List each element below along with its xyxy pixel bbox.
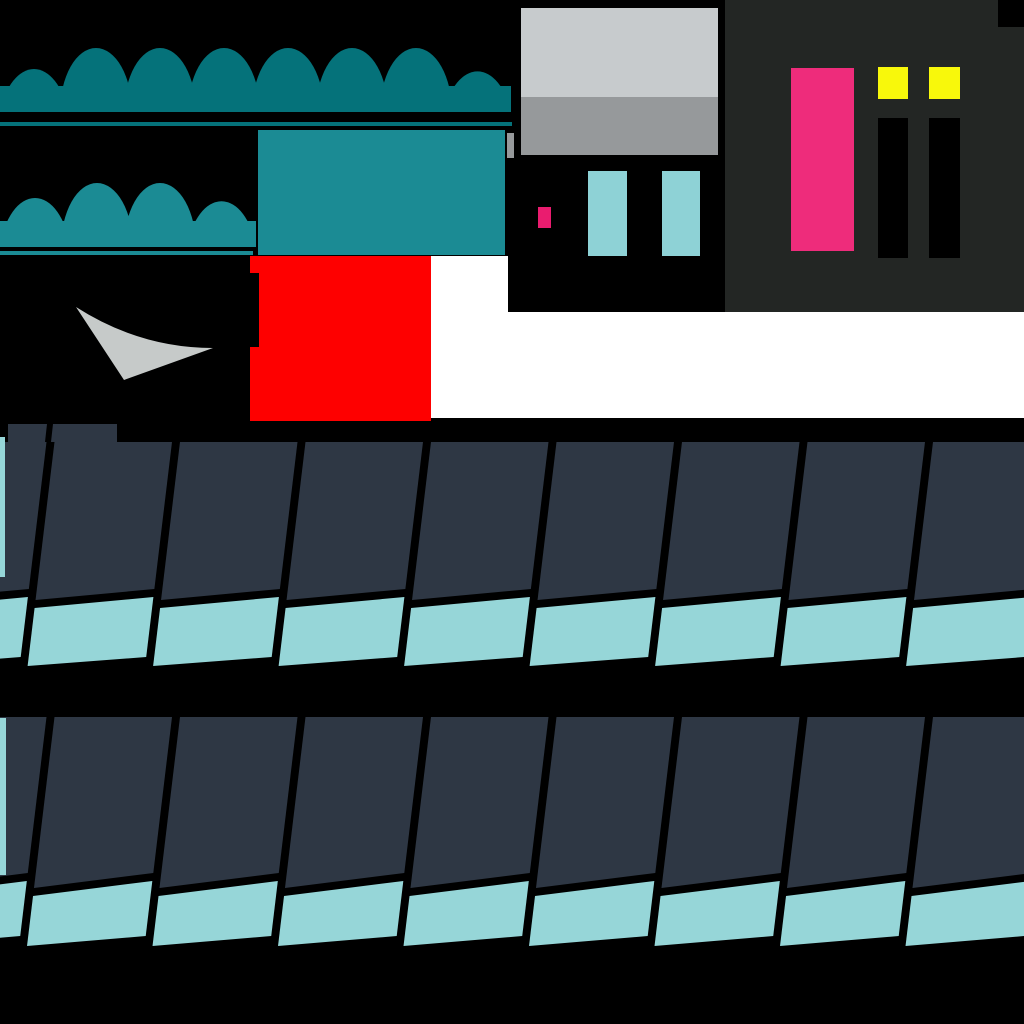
sprite-sheet (0, 0, 1024, 1024)
shingle-raised-patch (8, 424, 47, 442)
shingle-dark-panel (285, 717, 423, 888)
awning-trim-line (0, 122, 512, 126)
shingle-dark-panel (536, 717, 674, 888)
shingle-teal-strip (655, 597, 781, 666)
shingle-teal-strip (279, 597, 405, 666)
shingle-dark-panel (161, 442, 297, 600)
shingle-dark-panel (412, 442, 548, 600)
shingle-raised-patch (51, 424, 117, 442)
awning-trim-line (0, 251, 253, 255)
window-cyan-left (588, 171, 627, 256)
red-rectangle (250, 256, 431, 421)
shingle-teal-strip (28, 597, 154, 666)
shingle-teal-strip (906, 597, 1024, 666)
shingle-dark-panel (663, 442, 799, 600)
sprite-sheet-canvas (0, 0, 1024, 1024)
window-cyan-right (662, 171, 700, 256)
red-left-notch (250, 273, 259, 347)
wall-gray-sliver (507, 133, 514, 158)
shingle-dark-panel (287, 442, 423, 600)
shingle-dark-panel (787, 717, 925, 888)
wall-lower (521, 97, 718, 155)
shingle-teal-strip (530, 597, 656, 666)
shingle-teal-strip (153, 597, 279, 666)
shingle-dark-panel (34, 717, 172, 888)
shingle-left-sliver (0, 437, 5, 577)
shingle-dark-panel (159, 717, 297, 888)
shingle-dark-panel (410, 717, 548, 888)
window-black-right (929, 118, 960, 258)
window-yellow-left (878, 67, 908, 99)
facade-corner-notch (998, 0, 1024, 27)
shingle-teal-strip (781, 597, 907, 666)
window-yellow-right (929, 67, 960, 99)
window-black-left (878, 118, 908, 258)
awning-band (0, 221, 256, 247)
shingle-left-sliver (0, 718, 6, 875)
shingle-dark-panel (661, 717, 799, 888)
teal-rectangle (258, 130, 505, 255)
door-pink (791, 68, 854, 251)
awning-band (0, 86, 511, 112)
shingle-dark-panel (538, 442, 674, 600)
sign-pink-small (538, 207, 551, 228)
shingle-teal-strip (404, 597, 530, 666)
shingle-dark-panel (36, 442, 172, 600)
seam-black-bar (508, 256, 517, 312)
shingle-dark-panel (914, 442, 1024, 600)
wall-upper (521, 8, 718, 97)
facade-charcoal-panel (725, 0, 1024, 312)
shingle-dark-panel (789, 442, 925, 600)
